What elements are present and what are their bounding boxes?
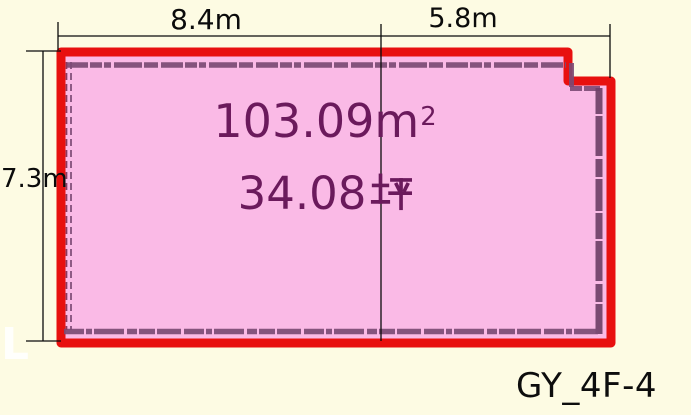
tsubo-value: 34.08: [238, 167, 367, 220]
area-unit-superscript: 2: [420, 102, 436, 132]
dimension-label-left-height: 7.3m: [1, 165, 68, 194]
room-area-tsubo: 34.08: [138, 168, 512, 222]
watermark-letter: L: [1, 321, 29, 369]
room-area-square-meters: 103.09m2: [138, 96, 512, 147]
area-unit-m: m: [374, 94, 419, 148]
dimension-label-top-right-width: 5.8m: [417, 4, 509, 34]
area-value: 103.09: [213, 94, 374, 148]
dimension-label-top-left-width: 8.4m: [160, 5, 252, 36]
floor-plan-canvas: 8.4m 5.8m 7.3m 103.09m2 34.08 GY_4F-4 L: [0, 0, 691, 415]
plan-id-label: GY_4F-4: [516, 368, 657, 405]
tsubo-unit-glyph: [370, 168, 412, 222]
